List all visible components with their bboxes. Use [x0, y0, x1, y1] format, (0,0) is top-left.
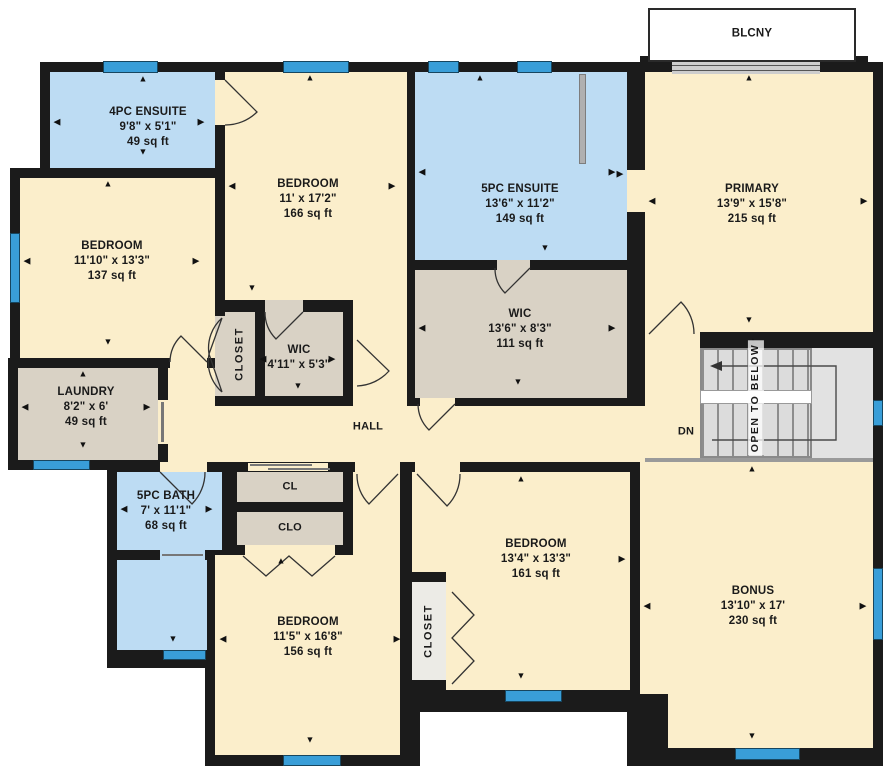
window — [163, 650, 206, 660]
room-name: BONUS — [721, 584, 785, 599]
room-area: 166 sq ft — [277, 208, 338, 223]
window — [735, 748, 800, 760]
dimension-arrow-up: ▲ — [139, 75, 148, 84]
room-name: BEDROOM — [273, 615, 343, 630]
window — [283, 61, 349, 73]
dimension-arrow-right: ▶ — [198, 118, 205, 127]
dimension-arrow-up: ▲ — [748, 465, 757, 474]
room-floor — [812, 348, 873, 458]
dimension-arrow-right: ▶ — [860, 602, 867, 611]
room-name: 4PC ENSUITE — [109, 105, 187, 120]
room-floor — [168, 368, 215, 462]
room-floor — [668, 694, 873, 748]
room-area: 137 sq ft — [74, 270, 150, 285]
dimension-arrow-right: ▶ — [144, 403, 151, 412]
room-label-bedroom-s: BEDROOM 13'4" x 13'3" 161 sq ft — [501, 537, 571, 583]
dimension-arrow-down: ▼ — [517, 672, 526, 681]
dimension-arrow-up: ▲ — [306, 74, 315, 83]
dimension-arrow-left: ◀ — [54, 118, 61, 127]
room-floor — [415, 462, 460, 472]
room-floor — [117, 560, 207, 650]
dimension-arrow-down: ▼ — [514, 378, 523, 387]
ensuite-shower-divider — [579, 74, 586, 164]
room-dims: 13'4" x 13'3" — [501, 552, 571, 567]
dimension-arrow-down: ▼ — [541, 244, 550, 253]
room-area: 230 sq ft — [721, 615, 785, 630]
room-area: 68 sq ft — [137, 520, 195, 535]
window — [10, 233, 20, 303]
room-dims: 11' x 17'2" — [277, 192, 338, 207]
room-floor — [627, 170, 645, 212]
room-floor — [170, 358, 207, 368]
dimension-arrow-down: ▼ — [79, 441, 88, 450]
room-floor — [215, 316, 225, 396]
room-label-bedroom-nw: BEDROOM 11'10" x 13'3" 137 sq ft — [74, 239, 150, 285]
closet-lower-label: CLOSET — [422, 604, 437, 658]
room-dims: 13'9" x 15'8" — [717, 197, 787, 212]
window — [873, 400, 883, 426]
cl-sliding-door-line2 — [268, 468, 330, 470]
dimension-arrow-down: ▼ — [169, 635, 178, 644]
dimension-arrow-up: ▲ — [745, 74, 754, 83]
dimension-arrow-down: ▼ — [306, 736, 315, 745]
room-label-bonus: BONUS 13'10" x 17' 230 sq ft — [721, 584, 785, 630]
dimension-arrow-down: ▼ — [248, 284, 257, 293]
room-floor — [245, 545, 335, 555]
dimension-arrow-down: ▼ — [294, 382, 303, 391]
room-area: 215 sq ft — [717, 213, 787, 228]
room-area: 161 sq ft — [501, 568, 571, 583]
dimension-arrow-down: ▼ — [748, 732, 757, 741]
room-floor — [645, 332, 700, 462]
room-label-laundry: LAUNDRY 8'2" x 6' 49 sq ft — [57, 385, 114, 431]
dimension-arrow-up: ▲ — [476, 74, 485, 83]
window — [283, 755, 341, 766]
dimension-arrow-left: ◀ — [22, 403, 29, 412]
window — [517, 61, 552, 73]
room-label-ensuite-5pc: 5PC ENSUITE 13'6" x 11'2" 149 sq ft — [481, 182, 559, 228]
room-floor — [355, 462, 400, 472]
room-area: 49 sq ft — [109, 136, 187, 151]
room-floor — [353, 472, 400, 562]
dimension-arrow-up: ▲ — [104, 180, 113, 189]
room-name: BEDROOM — [501, 537, 571, 552]
room-area: 156 sq ft — [273, 646, 343, 661]
clo-label: CLO — [278, 521, 302, 536]
window — [33, 460, 90, 470]
room-floor — [353, 300, 407, 406]
window — [505, 690, 562, 702]
room-area: 111 sq ft — [488, 338, 552, 353]
room-floor — [215, 406, 647, 462]
room-label-ensuite-4pc: 4PC ENSUITE 9'8" x 5'1" 49 sq ft — [109, 105, 187, 151]
room-label-bedroom-sw: BEDROOM 11'5" x 16'8" 156 sq ft — [273, 615, 343, 661]
dimension-arrow-right: ▶ — [609, 168, 616, 177]
window — [428, 61, 459, 73]
room-name: 5PC BATH — [137, 489, 195, 504]
room-name: WIC — [488, 307, 552, 322]
room-name: WIC — [268, 343, 331, 358]
dimension-arrow-left: ◀ — [644, 602, 651, 611]
room-floor — [160, 462, 207, 472]
window — [103, 61, 158, 73]
room-name: LAUNDRY — [57, 385, 114, 400]
room-dims: 13'10" x 17' — [721, 599, 785, 614]
room-label-primary: PRIMARY 13'9" x 15'8" 215 sq ft — [717, 182, 787, 228]
dimension-arrow-down: ▼ — [745, 316, 754, 325]
bath-pocket-door — [162, 554, 203, 556]
dimension-arrow-left: ◀ — [220, 635, 227, 644]
room-dims: 9'8" x 5'1" — [109, 120, 187, 135]
closet-upper-label: CLOSET — [233, 327, 248, 381]
dimension-arrow-left: ◀ — [121, 505, 128, 514]
room-floor — [420, 398, 455, 406]
dimension-arrow-left: ◀ — [419, 168, 426, 177]
dimension-arrow-left: ◀ — [24, 257, 31, 266]
cl-sliding-door-line1 — [250, 464, 312, 466]
room-dims: 13'6" x 11'2" — [481, 197, 559, 212]
dimension-arrow-right: ▶ — [394, 635, 401, 644]
room-area: 149 sq ft — [481, 213, 559, 228]
dimension-arrow-right: ▶ — [619, 555, 626, 564]
dimension-arrow-left: ◀ — [419, 324, 426, 333]
dimension-arrow-up: ▲ — [517, 475, 526, 484]
room-label-bedroom-n: BEDROOM 11' x 17'2" 166 sq ft — [277, 177, 338, 223]
dimension-arrow-down: ▼ — [104, 338, 113, 347]
hall-label: HALL — [353, 420, 383, 435]
room-name: PRIMARY — [717, 182, 787, 197]
room-floor — [640, 462, 873, 694]
room-floor — [497, 260, 530, 270]
dimension-arrow-right: ▶ — [609, 324, 616, 333]
balcony-label: BLCNY — [732, 26, 773, 41]
dimension-arrow-right: ▶ — [617, 170, 624, 179]
floor-plan: ▲▼◀▶▲▼◀▶▲▼◀▶▲▼◀▶▲▼◀▶▼◀▶▲▼◀▶▶◀▶▼◀▶▼▲▼▶▲▼◀… — [0, 0, 889, 768]
dimension-arrow-right: ▶ — [861, 197, 868, 206]
room-label-wic-small: WIC 4'11" x 5'3" — [268, 343, 331, 373]
room-dims: 8'2" x 6' — [57, 400, 114, 415]
dimension-arrow-left: ◀ — [260, 355, 267, 364]
room-label-bath-5pc: 5PC BATH 7' x 11'1" 68 sq ft — [137, 489, 195, 535]
stair-zone-edge-line — [645, 458, 873, 462]
room-dims: 11'10" x 13'3" — [74, 254, 150, 269]
room-dims: 13'6" x 8'3" — [488, 322, 552, 337]
room-floor — [215, 80, 225, 125]
dimension-arrow-left: ◀ — [229, 182, 236, 191]
laundry-pocket-door — [161, 402, 164, 442]
room-dims: 7' x 11'1" — [137, 504, 195, 519]
dimension-arrow-right: ▶ — [206, 505, 213, 514]
dimension-arrow-up: ▲ — [277, 557, 286, 566]
room-name: BEDROOM — [277, 177, 338, 192]
room-dims: 4'11" x 5'3" — [268, 358, 331, 373]
dimension-arrow-left: ◀ — [649, 197, 656, 206]
room-label-wic-primary: WIC 13'6" x 8'3" 111 sq ft — [488, 307, 552, 353]
cl-label: CL — [282, 480, 297, 495]
dimension-arrow-right: ▶ — [389, 182, 396, 191]
open-to-below-label: OPEN TO BELOW — [748, 341, 764, 456]
dimension-arrow-right: ▶ — [193, 257, 200, 266]
room-dims: 11'5" x 16'8" — [273, 630, 343, 645]
room-name: 5PC ENSUITE — [481, 182, 559, 197]
window — [873, 568, 883, 640]
room-area: 49 sq ft — [57, 416, 114, 431]
room-floor — [265, 300, 303, 312]
dimension-arrow-up: ▲ — [79, 370, 88, 379]
room-floor — [415, 72, 627, 260]
room-name: BEDROOM — [74, 239, 150, 254]
stairs-dn-label: DN — [678, 425, 694, 440]
